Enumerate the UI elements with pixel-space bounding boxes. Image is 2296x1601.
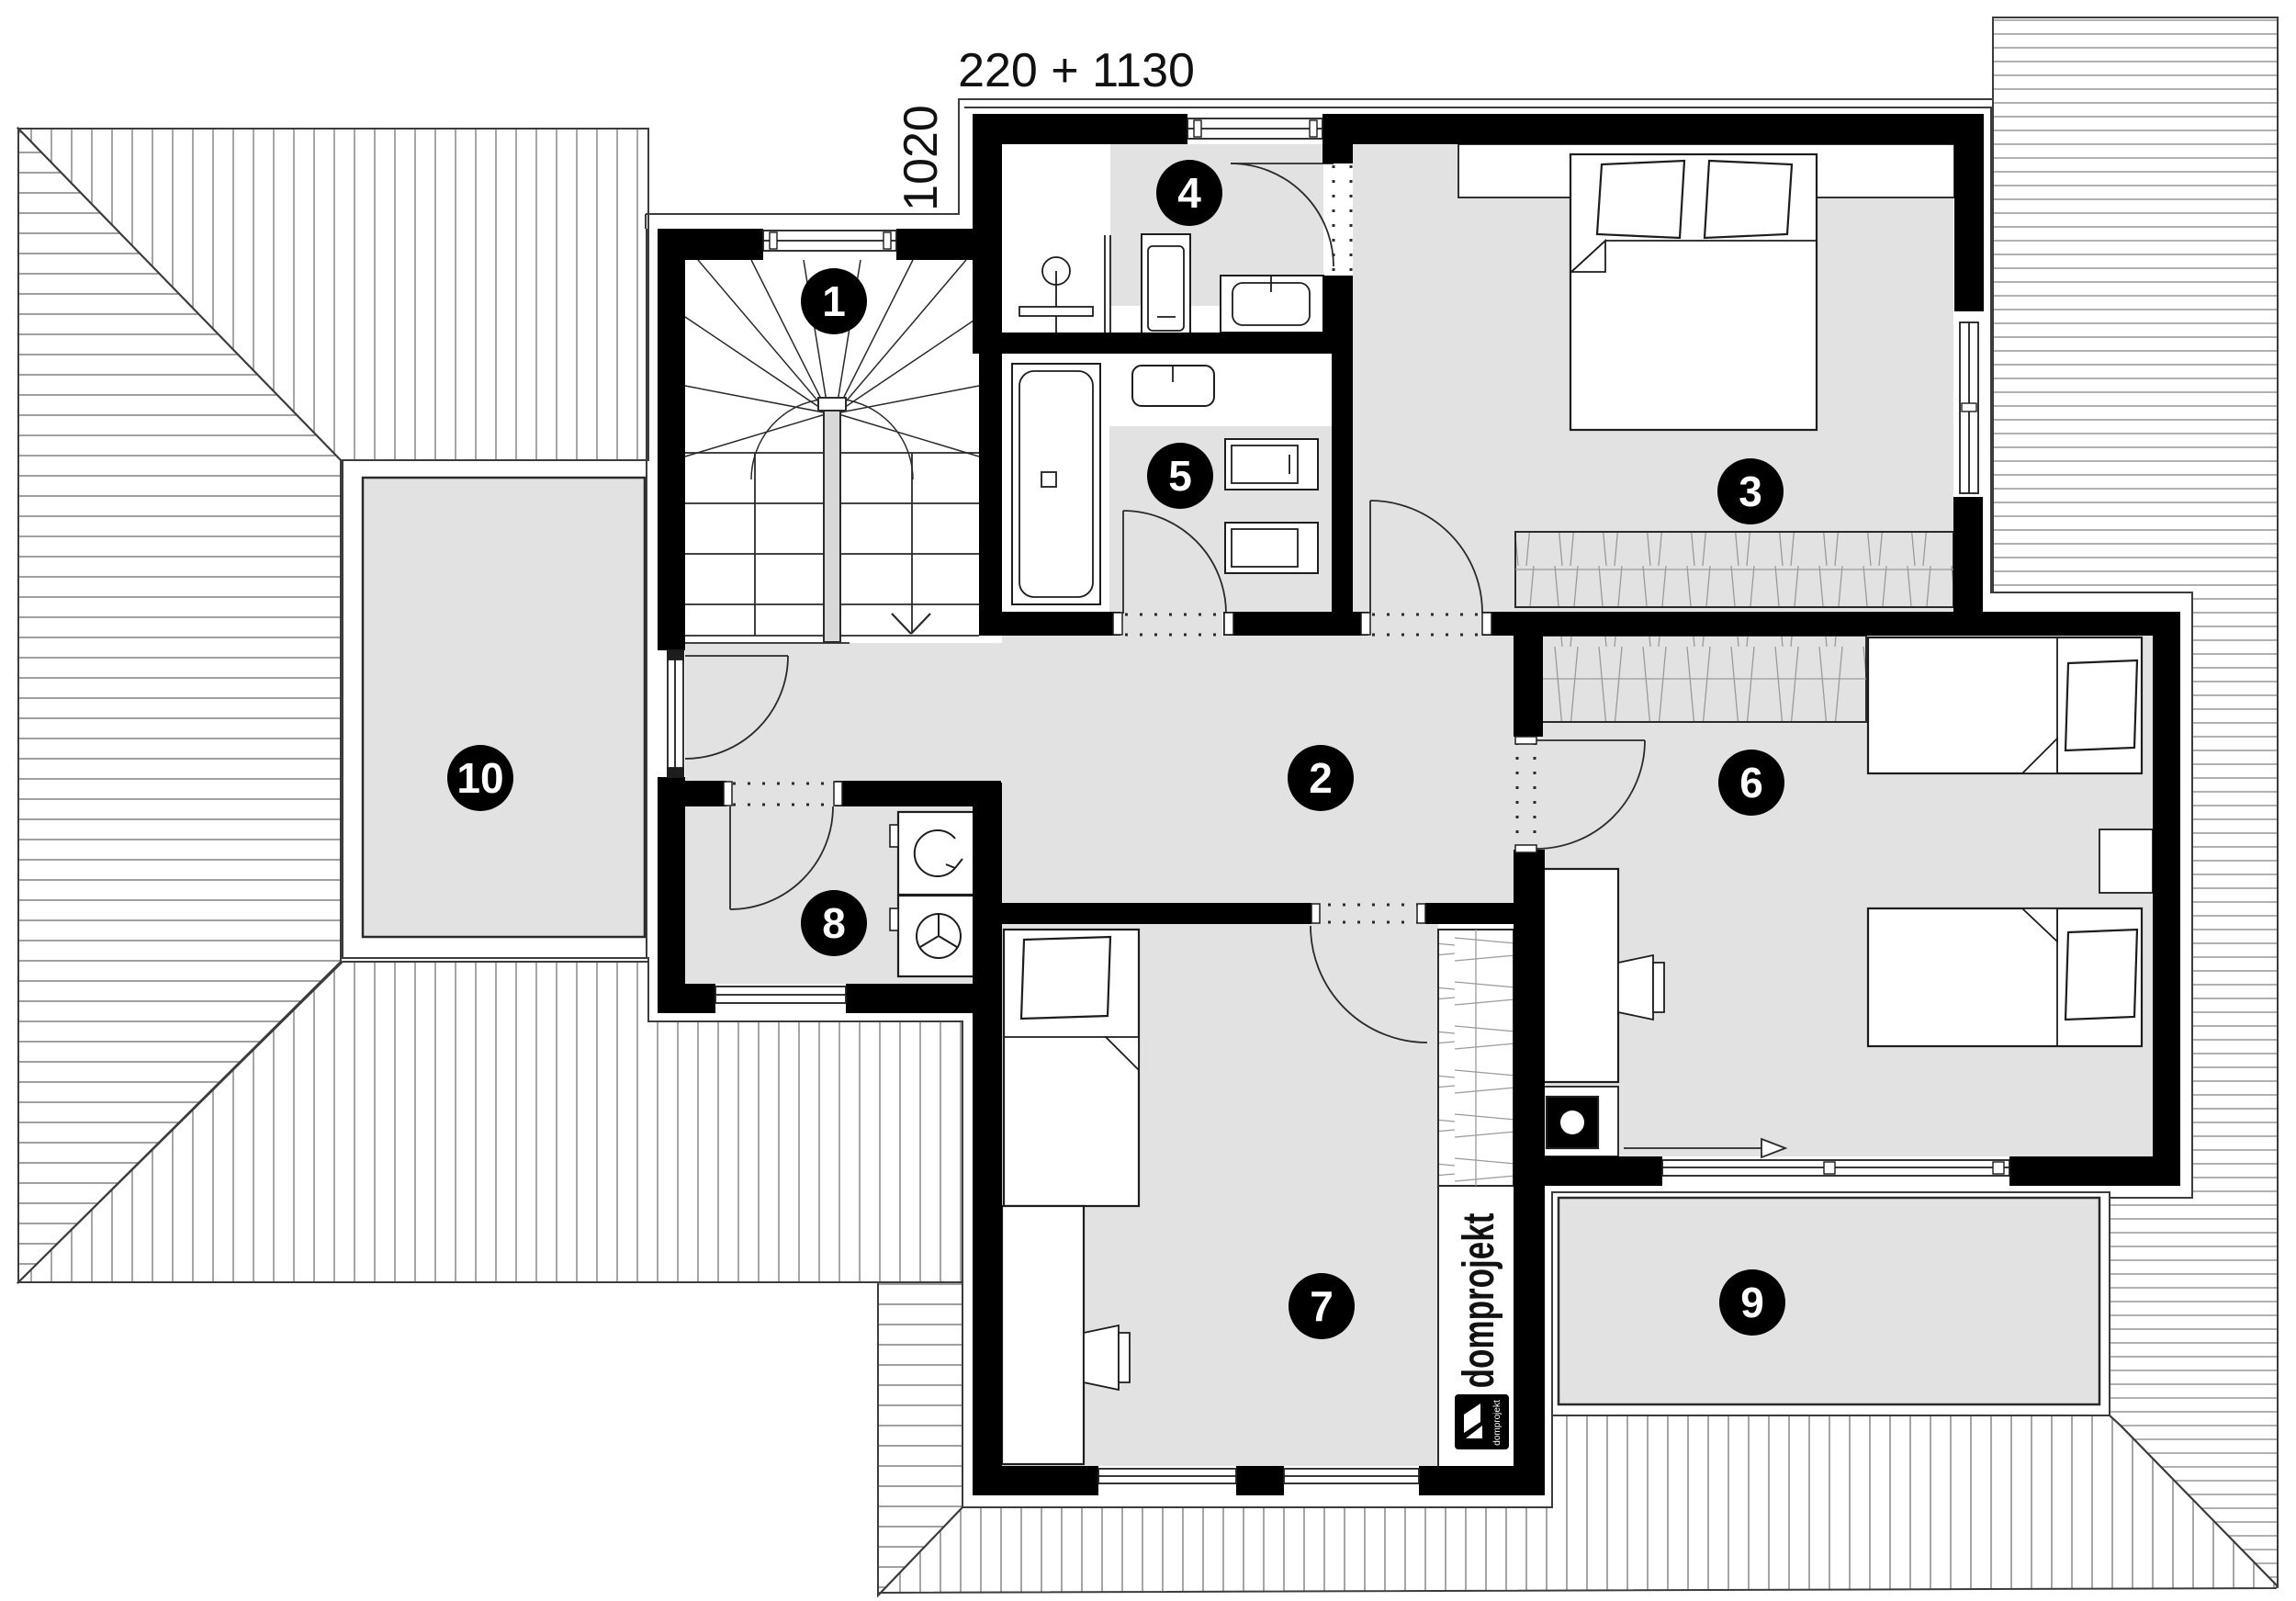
svg-text:1020: 1020	[895, 105, 948, 211]
svg-text:10: 10	[456, 754, 503, 802]
svg-text:6: 6	[1739, 759, 1763, 806]
svg-text:8: 8	[822, 899, 846, 947]
svg-text:4: 4	[1177, 169, 1201, 217]
svg-text:9: 9	[1740, 1279, 1764, 1326]
svg-text:3: 3	[1739, 468, 1762, 515]
svg-text:domprojekt: domprojekt	[1454, 1213, 1503, 1389]
svg-text:domprojekt: domprojekt	[1492, 1400, 1503, 1446]
svg-text:2: 2	[1309, 754, 1333, 802]
svg-text:7: 7	[1310, 1282, 1334, 1330]
svg-text:220 + 1130: 220 + 1130	[958, 44, 1195, 97]
svg-text:5: 5	[1168, 452, 1192, 500]
svg-text:1: 1	[822, 277, 846, 325]
